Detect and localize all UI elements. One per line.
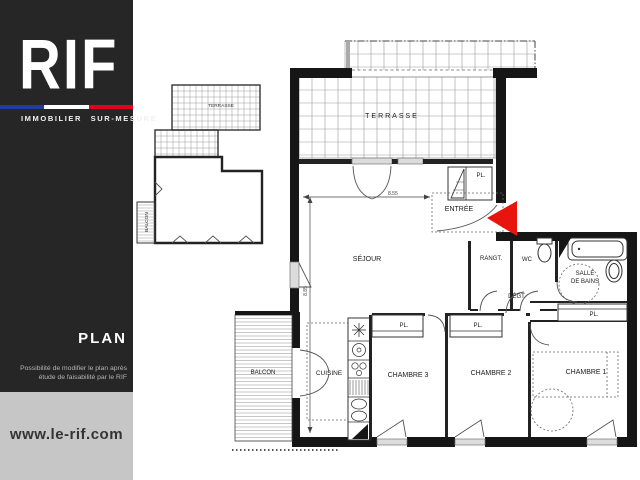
flag-red-segment [89, 105, 133, 109]
washbasin-icon [606, 260, 622, 282]
wc-label: WC [522, 257, 533, 263]
sidebar: RIF IMMOBILIER SUR-MESURE PLAN Possibili… [0, 0, 133, 392]
upper-terrace-strip [345, 41, 535, 70]
page-root: { "sidebar": { "logo": "RIF", "tagline":… [0, 0, 640, 480]
tagline: IMMOBILIER SUR-MESURE [21, 114, 157, 123]
sejour-label: SÉJOUR [353, 254, 381, 263]
flag-white-segment [44, 105, 89, 109]
pl-label-chambre1: PL. [589, 312, 598, 318]
rangt-label: RANGT. [480, 256, 502, 262]
pl-label-chambre2: PL. [473, 323, 482, 329]
entrance-arrow-icon [487, 201, 517, 236]
cuisine-zone: CUISINE [307, 318, 370, 440]
rif-logo: RIF [19, 30, 118, 101]
chambre1-furniture [531, 352, 618, 431]
mini-terrasse-hatch-lower [155, 130, 218, 157]
plan-note: Possibilité de modifier le plan après ét… [5, 364, 127, 382]
cuisine-label: CUISINE [316, 370, 343, 377]
terrace-door-window [352, 158, 392, 164]
sejour-window-left [290, 262, 311, 288]
sejour-window [398, 158, 423, 164]
salle-de-bains-label-1: SALLE [576, 271, 595, 277]
pl-closet-chambre3: PL. [372, 315, 423, 337]
pl-closet-chambre1: PL. [558, 304, 627, 321]
pl-closet-entree: PL. [448, 167, 492, 200]
chambre1-label: CHAMBRE 1 [566, 369, 607, 376]
kitchen-column [348, 318, 370, 440]
chambre2-label: CHAMBRE 2 [471, 370, 512, 377]
dim-height-label: 8.85 [303, 286, 309, 296]
plan-title: PLAN [78, 330, 127, 347]
terrasse-area: TERRASSE [299, 77, 496, 158]
dishwasher-icon [350, 380, 368, 395]
plan-note-line2: étude de faisabilité par le RIF [5, 373, 127, 382]
main-floor-plan: TERRASSE [232, 41, 637, 450]
sidebar-footer: www.le-rif.com [0, 392, 133, 480]
plan-note-line1: Possibilité de modifier le plan après [5, 364, 127, 373]
toilet-icon [537, 238, 552, 262]
dim-width-label: 8.55 [388, 191, 398, 197]
balcon-label: BALCON [251, 370, 276, 376]
flag-blue-segment [0, 105, 44, 109]
website-url: www.le-rif.com [0, 426, 133, 443]
hob-icon [352, 323, 366, 337]
mini-window-swings [155, 182, 254, 243]
entree-label: ENTRÉE [445, 204, 474, 213]
mini-terrasse-label: TERRASSE [208, 103, 234, 109]
balcon-area: BALCON [232, 311, 340, 450]
mini-balcon-label: BALCON [144, 212, 150, 232]
bathtub-icon [559, 238, 627, 260]
chambre3-label: CHAMBRE 3 [388, 372, 429, 379]
pl-closet-chambre2: PL. [450, 315, 502, 337]
pl-label-entree: PL. [476, 173, 485, 179]
salle-de-bains-label-2: DE BAINS [571, 279, 599, 285]
terrasse-label: TERRASSE [365, 113, 419, 120]
mini-outline [155, 157, 262, 243]
pl-label-chambre3: PL. [399, 323, 408, 329]
mini-floor-plan: TERRASSE BALCON [137, 85, 262, 243]
french-flag-stripe [0, 105, 133, 109]
balcon-hatch [235, 315, 292, 441]
